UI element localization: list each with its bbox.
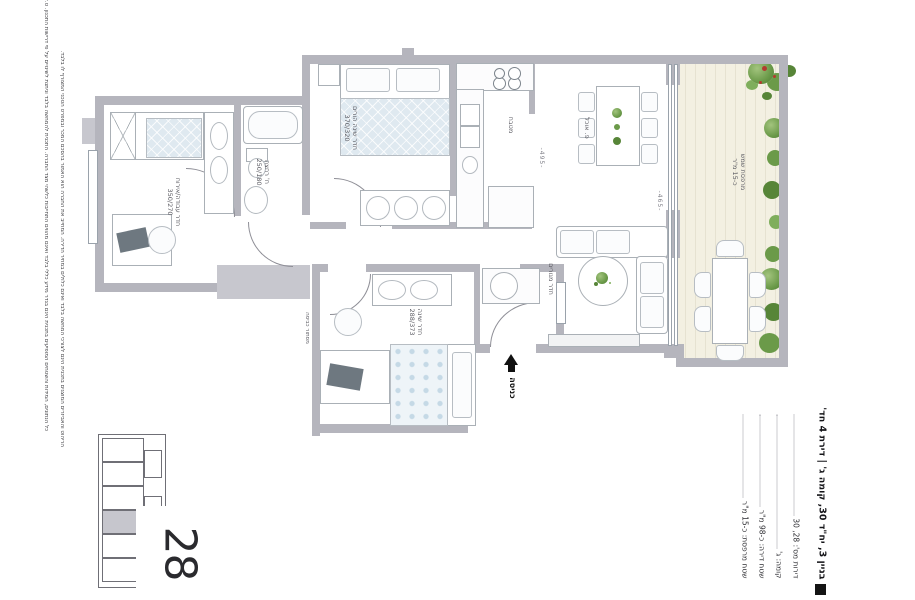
spec-line-terrace-area: שטח מרפסת: כ-15 מ"ר	[741, 415, 754, 579]
wall-block2-left	[312, 264, 320, 436]
dim-label-495: -495-	[535, 118, 545, 198]
dining-chair	[641, 92, 658, 112]
spec-line-floor: קומה: ג'	[775, 415, 788, 579]
door-arc-bath	[248, 222, 293, 267]
terrace-flowers	[762, 66, 767, 71]
bedroom2-pillow	[452, 352, 472, 418]
master-pillow-2	[396, 68, 440, 92]
terrace-table	[712, 258, 748, 344]
wardrobe-oval	[366, 196, 390, 220]
room-label-terrace-name: מרפסת שמש	[739, 132, 747, 212]
keyplan-unit	[102, 438, 144, 462]
study-bed-blanket	[146, 118, 202, 158]
laundry-screen-area	[217, 265, 310, 299]
dotted-leader	[777, 415, 778, 549]
wardrobe-oval	[210, 122, 228, 150]
wall-study-top	[95, 96, 310, 105]
room-label-kitchen: מטבח	[503, 85, 515, 165]
stove-burners	[494, 68, 505, 79]
terrace-chair	[749, 272, 766, 298]
wardrobe-oval	[210, 156, 228, 184]
room-label-living: חדר מגורים	[543, 239, 555, 319]
room-label-bath-dims: 250/180	[255, 132, 263, 212]
master-nightstand	[318, 64, 340, 86]
dotted-leader	[743, 415, 744, 498]
dotted-leader	[760, 415, 761, 507]
kitchen-fixture	[462, 156, 478, 174]
bedroom2-chair	[334, 308, 362, 336]
terrace-window-line-1	[668, 64, 672, 346]
kitchen-island	[488, 186, 534, 228]
tv-unit	[548, 334, 640, 347]
terrace-window-line-2	[674, 64, 678, 346]
sofa-cushion	[596, 230, 630, 254]
disclaimer-line-1: כל הנתונים, המידות והשטחים המופיעים בתכנ…	[39, 0, 49, 431]
room-label-bath-name: ח' רחצה	[263, 132, 271, 212]
room-label-study-name: חדר עבודה/אירוח	[174, 162, 182, 242]
door-arc-entrance	[490, 302, 537, 347]
entrance-label: כניסה	[505, 348, 517, 428]
wall-core-left	[302, 55, 310, 215]
dining-centerpiece	[612, 108, 622, 118]
room-label-bedroom2-name: חדר שינה	[416, 282, 424, 362]
wall-bedroom2-hall-divider	[474, 264, 480, 348]
dim-label-465: -465-	[653, 161, 663, 241]
wall-pillar-top	[402, 48, 414, 57]
apartment-title: בניין 3, יח"ד 30, קומה ג' | דירת 4 חד'	[813, 414, 828, 580]
wardrobe-oval	[422, 196, 446, 220]
room-label-bedroom2-dims: 288/373	[408, 282, 416, 362]
room-label-master: חדר שינה הורים 370/320	[339, 88, 359, 168]
room-label-laundry: מסתור כביסה	[300, 288, 310, 368]
floorplan-sheet: כל הנתונים, המידות והשטחים המופיעים בתכנ…	[0, 0, 915, 600]
study-window	[88, 150, 98, 244]
wardrobe-oval	[394, 196, 418, 220]
dining-chair	[641, 118, 658, 138]
wall-study-bottom	[95, 283, 217, 292]
sofa-cushion	[640, 296, 664, 328]
keyplan-unit	[102, 462, 144, 486]
terrace-chair	[694, 272, 711, 298]
terrace-chair	[694, 306, 711, 332]
terrace-chair	[716, 345, 744, 361]
wall-top	[302, 55, 788, 64]
coffee-table-plant	[596, 272, 608, 284]
wall-study-bath-divider	[234, 96, 241, 216]
corner-square-mark	[815, 584, 826, 595]
room-label-bedroom2: חדר שינה 288/373	[404, 282, 424, 362]
room-label-terrace-dims: כ-15 מ"ר	[731, 132, 739, 212]
wall-block2-top-b	[366, 264, 480, 272]
terrace-chair	[716, 240, 744, 257]
dining-table	[596, 86, 640, 166]
room-label-study: חדר עבודה/אירוח 350/270	[162, 162, 182, 242]
hall-window	[556, 282, 566, 324]
room-label-study-dims: 350/270	[166, 162, 174, 242]
unit-number-badge: 28	[136, 506, 224, 600]
room-label-terrace: מרפסת שמש כ-15 מ"ר	[727, 132, 747, 212]
wall-terrace-right	[779, 55, 788, 367]
kitchen-sink-2	[460, 126, 480, 148]
ac-unit	[82, 118, 95, 144]
hall-round-sink	[490, 272, 518, 300]
room-label-bath: ח' רחצה 250/180	[251, 132, 271, 212]
spec-line-units: דירות מס': 28, 30	[792, 415, 805, 579]
wardrobe-oval	[378, 280, 406, 300]
spec-line-apartment-area: שטח דירה: כ-98 מ"ר	[758, 415, 771, 579]
terrace-corner-post	[664, 344, 684, 358]
dotted-leader	[794, 415, 795, 516]
disclaimer-line-2: הריהוט והאביזרים המוצגים בתכנית הינם לצו…	[55, 15, 65, 447]
room-label-master-dims: 370/320	[343, 88, 351, 168]
kitchen-sink-1	[460, 104, 480, 126]
room-label-master-name: חדר שינה הורים	[351, 88, 359, 168]
sofa-cushion	[640, 262, 664, 294]
sofa-cushion	[560, 230, 594, 254]
terrace-chair	[749, 306, 766, 332]
room-label-dining: פ. אוכל	[579, 88, 591, 168]
unit-number: 28	[155, 526, 206, 580]
keyplan-core	[144, 450, 162, 478]
study-bed-headboard	[110, 112, 136, 160]
